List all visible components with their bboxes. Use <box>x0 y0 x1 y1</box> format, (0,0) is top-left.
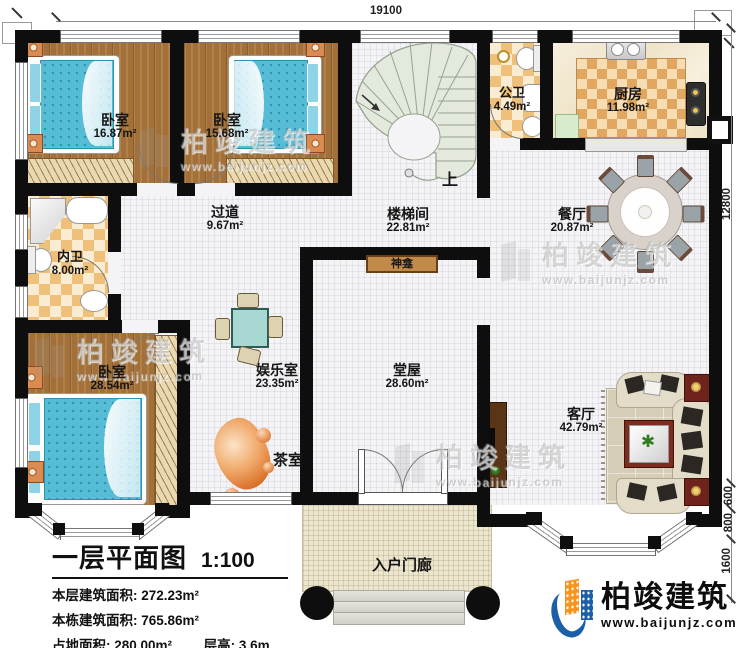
kitchen-sink-bowl <box>611 43 624 56</box>
sofa-cushion <box>681 455 703 475</box>
kitchen-opening <box>585 138 687 152</box>
dim-right-1600: 1600 <box>721 548 733 574</box>
room-label-hallway: 过道 9.67m² <box>207 204 243 233</box>
room-area: 20.87m² <box>551 222 594 235</box>
bed-pillow <box>28 402 41 446</box>
window <box>15 62 28 160</box>
room-area: 11.98m² <box>607 102 649 115</box>
window <box>15 286 28 318</box>
stat-value: 765.86m² <box>141 613 199 628</box>
stat-label: 本层建筑面积: <box>52 588 138 603</box>
room-name: 卧室 <box>98 364 126 380</box>
room-label-dining: 餐厅 20.87m² <box>551 206 594 235</box>
bay-corner <box>526 512 542 525</box>
bed-pillow <box>29 63 41 103</box>
wardrobe-bedroom2 <box>226 158 334 184</box>
room-label-tea-room: 茶室 <box>273 452 303 469</box>
washbasin <box>80 290 108 312</box>
wall-bed2-stair <box>338 43 352 196</box>
window <box>210 492 292 505</box>
window <box>60 30 162 43</box>
room-label-stairwell: 楼梯间 22.81m² <box>387 206 430 235</box>
wall-below-bedrooms <box>15 183 352 196</box>
bay-corner <box>560 536 573 549</box>
door-gap <box>137 183 177 196</box>
game-chair <box>215 318 230 340</box>
stat-label: 本栋建筑面积: <box>52 613 138 628</box>
stat-value: 280.00m² <box>114 638 172 648</box>
door-gap <box>490 138 520 150</box>
stove-burner <box>691 106 700 115</box>
room-label-private-bath: 内卫 8.00m² <box>52 250 88 278</box>
bay-corner <box>155 503 169 516</box>
room-name: 过道 <box>211 204 239 220</box>
plan-scale: 1:100 <box>201 549 255 573</box>
wall-tangwu-stub <box>477 247 490 278</box>
room-area: 8.00m² <box>52 265 88 278</box>
stat-line: 占地面积: 280.00m² 层高: 3.6m <box>52 634 288 648</box>
bay-corner <box>648 536 661 549</box>
room-name: 内卫 <box>57 249 83 264</box>
game-chair <box>237 293 259 308</box>
entry-door-leaf <box>358 449 365 494</box>
nightstand <box>306 134 325 153</box>
sofa-cushion <box>681 431 703 451</box>
room-label-public-bath: 公卫 4.49m² <box>494 86 530 114</box>
bay-corner <box>132 523 144 535</box>
shrine-label: 神龛 <box>391 258 413 270</box>
title-block: 一层平面图 1:100 本层建筑面积: 272.23m² 本栋建筑面积: 765… <box>52 538 288 648</box>
wall <box>477 492 490 527</box>
bed-blanket <box>104 399 140 497</box>
room-label-kitchen: 厨房 11.98m² <box>607 86 649 115</box>
logo-building-blue <box>581 590 593 620</box>
sofa-pillow <box>643 380 662 396</box>
room-name: 卧室 <box>101 112 129 128</box>
door-gap <box>195 183 235 196</box>
door-gap <box>108 252 121 294</box>
plan-title: 一层平面图 <box>52 538 187 575</box>
room-area: 15.68m² <box>206 128 249 141</box>
wall-stair-right <box>477 30 490 198</box>
stat-label: 层高: <box>204 638 236 648</box>
bay-window-glass <box>566 543 656 556</box>
porch-column <box>300 586 334 620</box>
bay-corner <box>28 503 42 516</box>
window <box>360 30 450 43</box>
bay-corner <box>686 512 702 525</box>
dim-right-main: 12800 <box>721 188 733 220</box>
room-label-main-hall: 堂屋 28.60m² <box>386 362 429 391</box>
tea-stool <box>256 428 271 443</box>
stat-line: 本层建筑面积: 272.23m² <box>52 584 288 604</box>
room-name: 厨房 <box>614 86 642 102</box>
room-area: 28.54m² <box>91 380 134 393</box>
room-name: 客厅 <box>567 406 595 422</box>
window <box>572 30 680 43</box>
room-area: 42.79m² <box>560 422 603 435</box>
game-table <box>231 308 269 348</box>
logo-building-orange <box>565 579 579 615</box>
room-name: 餐厅 <box>558 206 586 222</box>
floor-plan-canvas: 19100 12800 600 800 1600 <box>0 0 750 648</box>
stat-label: 占地面积: <box>52 638 111 648</box>
room-label-living: 客厅 42.79m² <box>560 406 603 435</box>
window <box>198 30 300 43</box>
room-area: 23.35m² <box>256 378 299 391</box>
bed-pillow <box>307 63 319 103</box>
wall <box>709 30 722 527</box>
dining-table-center <box>638 205 652 219</box>
corner-tick-top-left <box>11 7 22 18</box>
shrine-cabinet: 神龛 <box>366 255 438 273</box>
game-chair <box>268 316 283 338</box>
window <box>15 398 28 468</box>
porch-column <box>466 586 500 620</box>
room-label-entertainment: 娱乐室 23.35m² <box>256 362 299 391</box>
bathtub <box>66 197 108 224</box>
tv-plant <box>491 466 500 475</box>
floor-drain <box>497 50 510 63</box>
room-area: 22.81m² <box>387 222 430 235</box>
room-area: 28.60m² <box>386 378 429 391</box>
window <box>15 214 28 250</box>
wardrobe-bedroom1 <box>26 158 134 184</box>
dim-right-800: 800 <box>723 513 735 532</box>
window <box>492 30 538 43</box>
porch-step <box>333 612 465 625</box>
dining-chair <box>683 206 705 223</box>
room-name: 堂屋 <box>393 362 421 378</box>
room-name: 入户门廊 <box>372 557 432 574</box>
sofa-cushion <box>681 406 704 426</box>
brand-logo-icon <box>552 578 596 634</box>
wall-tangwu-living <box>477 325 490 492</box>
kitchen-sink-bowl <box>627 43 640 56</box>
side-table-lamp <box>691 486 701 496</box>
room-label-bedroom2: 卧室 15.68m² <box>206 112 249 141</box>
wall-bath-kitchen <box>540 43 553 138</box>
room-name: 楼梯间 <box>387 206 429 222</box>
entry-door-leaf <box>441 449 448 494</box>
room-name: 娱乐室 <box>256 362 298 378</box>
entry-door-sill <box>358 492 448 505</box>
room-label-porch: 入户门廊 <box>372 557 432 574</box>
plant: ✱ <box>639 433 657 451</box>
toilet-tank <box>27 246 36 274</box>
kitchen-counter <box>555 114 579 140</box>
room-name: 茶室 <box>273 452 303 469</box>
corner-tick-top-right <box>723 37 734 48</box>
plan-title-row: 一层平面图 1:100 <box>52 538 288 579</box>
stat-line: 本栋建筑面积: 765.86m² <box>52 609 288 629</box>
dining-chair <box>637 251 654 273</box>
dim-right-600: 600 <box>723 486 735 505</box>
stat-value: 3.6m <box>239 638 270 648</box>
brand-logo: 柏竣建筑 www.baijunjz.com <box>552 578 737 634</box>
brand-name: 柏竣建筑 <box>601 583 737 613</box>
dimension-line-top <box>56 21 716 22</box>
room-area: 9.67m² <box>207 220 243 233</box>
wall <box>313 492 358 505</box>
room-label-bedroom1: 卧室 16.87m² <box>94 112 137 141</box>
room-name: 公卫 <box>499 85 525 100</box>
wall-neiwei-bottom <box>15 320 190 333</box>
stairs-up-label: 上 <box>442 172 458 190</box>
room-label-bedroom3: 卧室 28.54m² <box>91 364 134 393</box>
side-table-lamp <box>691 382 701 392</box>
room-area: 4.49m² <box>494 101 530 114</box>
room-area: 16.87m² <box>94 128 137 141</box>
spiral-staircase <box>352 37 479 187</box>
room-name: 卧室 <box>213 112 241 128</box>
entry-porch-floor <box>302 504 492 592</box>
dim-top-value: 19100 <box>356 5 416 17</box>
chimney-bump <box>707 116 733 144</box>
stat-value: 272.23m² <box>141 588 199 603</box>
brand-url: www.baijunjz.com <box>601 615 737 630</box>
stove-burner <box>691 88 700 97</box>
wall-bed3-right <box>177 333 190 505</box>
door-gap <box>122 320 158 333</box>
bay-corner <box>53 523 65 535</box>
dining-chair <box>637 155 654 177</box>
